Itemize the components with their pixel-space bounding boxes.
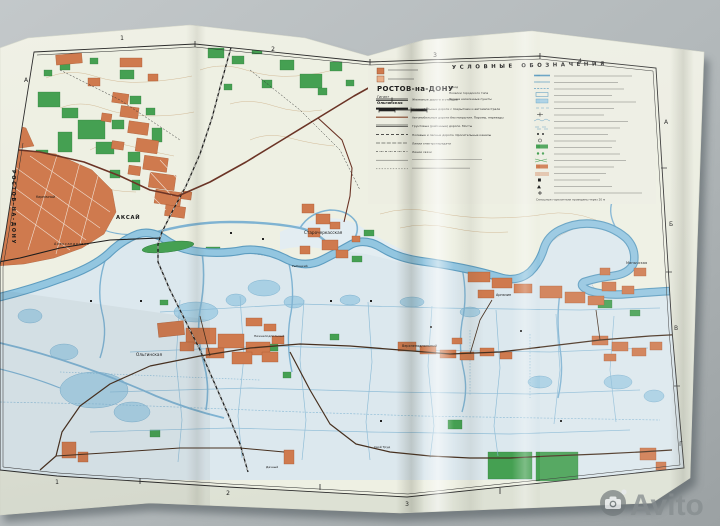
map-subtitle-1: Гигант <box>377 95 390 99</box>
city-label-rostov: РОСТОВ-НА-ДОНУ <box>10 170 16 245</box>
place-label-nizhnepodpolny: Нижнеподпольный <box>254 334 284 338</box>
place-label-kirpichny: Кирпичный <box>36 195 55 199</box>
place-label-arpachin: Арпачин <box>496 293 511 297</box>
photo-of-folded-map: УСЛОВНЫЕ ОБОЗНАЧЕНИЯ РОСТОВ-на-ДОНУ Гига… <box>0 0 720 526</box>
place-label-starocherkasskaya: Старочеркасская <box>304 230 343 235</box>
place-label-dachny: Дачный <box>266 465 278 469</box>
place-label-rybatsky: Рыбацкий <box>292 264 308 268</box>
grid-top-1: 1 <box>120 35 124 42</box>
watermark-brand: Avito <box>630 489 704 522</box>
place-label-svoy-trud: Свой Труд <box>374 445 390 449</box>
map-photo-canvas: УСЛОВНЫЕ ОБОЗНАЧЕНИЯ РОСТОВ-на-ДОНУ Гига… <box>0 0 720 526</box>
grid-top-2: 2 <box>271 46 275 53</box>
place-label-aleksandrovka: Александровка <box>54 242 89 246</box>
place-label-aksay: АКСАЙ <box>116 213 140 221</box>
grid-bottom-2: 2 <box>226 490 230 497</box>
